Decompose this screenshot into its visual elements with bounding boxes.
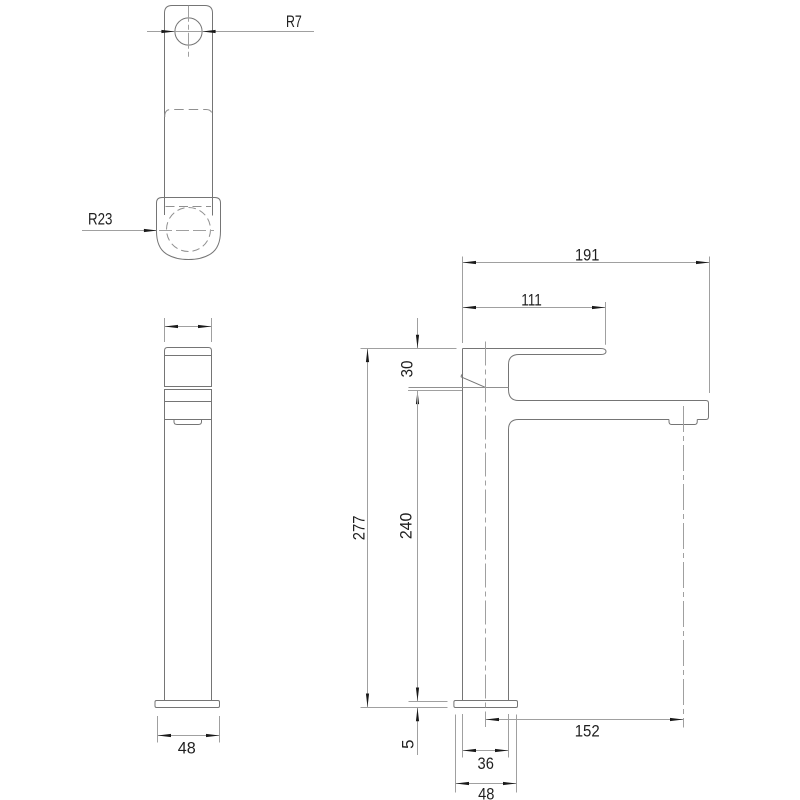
- svg-text:152: 152: [575, 722, 600, 740]
- svg-text:191: 191: [575, 246, 599, 264]
- svg-text:30: 30: [397, 361, 416, 378]
- svg-text:48: 48: [178, 739, 196, 757]
- svg-text:277: 277: [350, 516, 369, 541]
- svg-text:36: 36: [478, 755, 494, 773]
- svg-text:R23: R23: [88, 211, 112, 229]
- svg-text:240: 240: [396, 513, 415, 540]
- svg-text:R7: R7: [286, 13, 302, 31]
- svg-text:48: 48: [478, 786, 494, 800]
- svg-text:111: 111: [521, 292, 542, 310]
- svg-text:5: 5: [398, 740, 417, 749]
